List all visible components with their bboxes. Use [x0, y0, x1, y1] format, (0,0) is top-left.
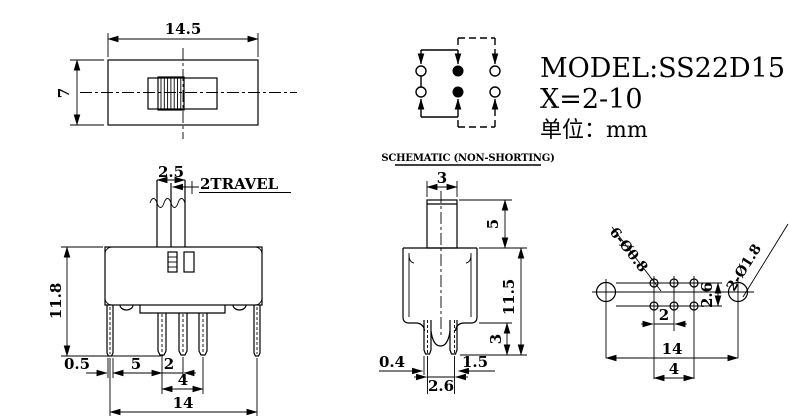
- mounting-holes-label: 2-Ø1.8: [724, 241, 765, 294]
- top-view-knob-ribs: [161, 77, 181, 110]
- side-view-knob: [427, 200, 457, 248]
- unit-note: 单位：mm: [540, 118, 648, 143]
- front-view-pins: [158, 313, 207, 355]
- schematic-terminals: [416, 66, 500, 98]
- schematic-diagram: SCHEMATIC (NON-SHORTING): [381, 38, 554, 165]
- schematic-solid-path: [421, 50, 458, 117]
- dim-pcb-mounting-span: 14: [662, 340, 683, 358]
- dim-pcb-col-pitch: 2: [659, 306, 669, 324]
- dim-side-knob-width: 3: [437, 169, 447, 187]
- top-view: 14.5 7: [55, 20, 297, 139]
- side-view-body: [403, 248, 477, 346]
- dim-bracket-to-pin: 5: [131, 355, 141, 373]
- common-terminal-top: [453, 66, 464, 77]
- travel-label: 2TRAVEL: [200, 175, 279, 193]
- schematic-dashed-path: [458, 38, 495, 127]
- dim-side-pin-pitch: 2.6: [428, 377, 454, 395]
- front-view-slots: [168, 252, 194, 272]
- common-terminal-bottom: [453, 87, 464, 98]
- title-block: MODEL:SS22D15 X=2-10 单位：mm: [540, 53, 785, 143]
- front-view: 2.5 2TRAVEL: [47, 163, 291, 416]
- dim-total-height: 11.8: [47, 283, 65, 320]
- dim-side-pin-length: 3: [487, 334, 505, 344]
- dim-bracket-span: 14: [173, 394, 194, 412]
- dim-knob-width: 2.5: [158, 163, 184, 181]
- schematic-caption: SCHEMATIC (NON-SHORTING): [381, 153, 554, 164]
- dim-side-body-height: 11.5: [500, 279, 518, 316]
- dim-side-pin-width: 1.5: [462, 353, 488, 371]
- x-range: X=2-10: [540, 84, 643, 115]
- dim-top-width: 14.5: [165, 20, 202, 38]
- dim-pcb-terminal-span: 4: [669, 360, 679, 378]
- dim-pcb-row-pitch: 2.6: [698, 282, 716, 308]
- front-view-base: [120, 305, 246, 313]
- dim-pin-span: 4: [178, 371, 188, 389]
- model-number: MODEL:SS22D15: [540, 53, 785, 84]
- side-view: 3 5 11.5 3 0.4 1.5 2.6: [379, 169, 527, 395]
- dim-side-pin-thickness: 0.4: [379, 353, 405, 371]
- dim-pin-pitch: 2: [164, 355, 174, 373]
- drawing-canvas: 14.5 7: [0, 0, 800, 420]
- terminal-holes-label: 6-Ø0.8: [606, 225, 651, 276]
- switch-drawing-sheet: 14.5 7: [0, 0, 800, 420]
- dim-top-height: 7: [55, 88, 73, 98]
- pcb-layout-view: 6-Ø0.8 2-Ø1.8 2.6 2 14 4: [592, 224, 788, 379]
- break-line: [150, 199, 185, 208]
- dim-side-knob-height: 5: [484, 219, 502, 229]
- front-view-knob: [150, 180, 185, 247]
- side-view-pins: [424, 320, 457, 354]
- dim-bracket-thickness: 0.5: [64, 355, 90, 373]
